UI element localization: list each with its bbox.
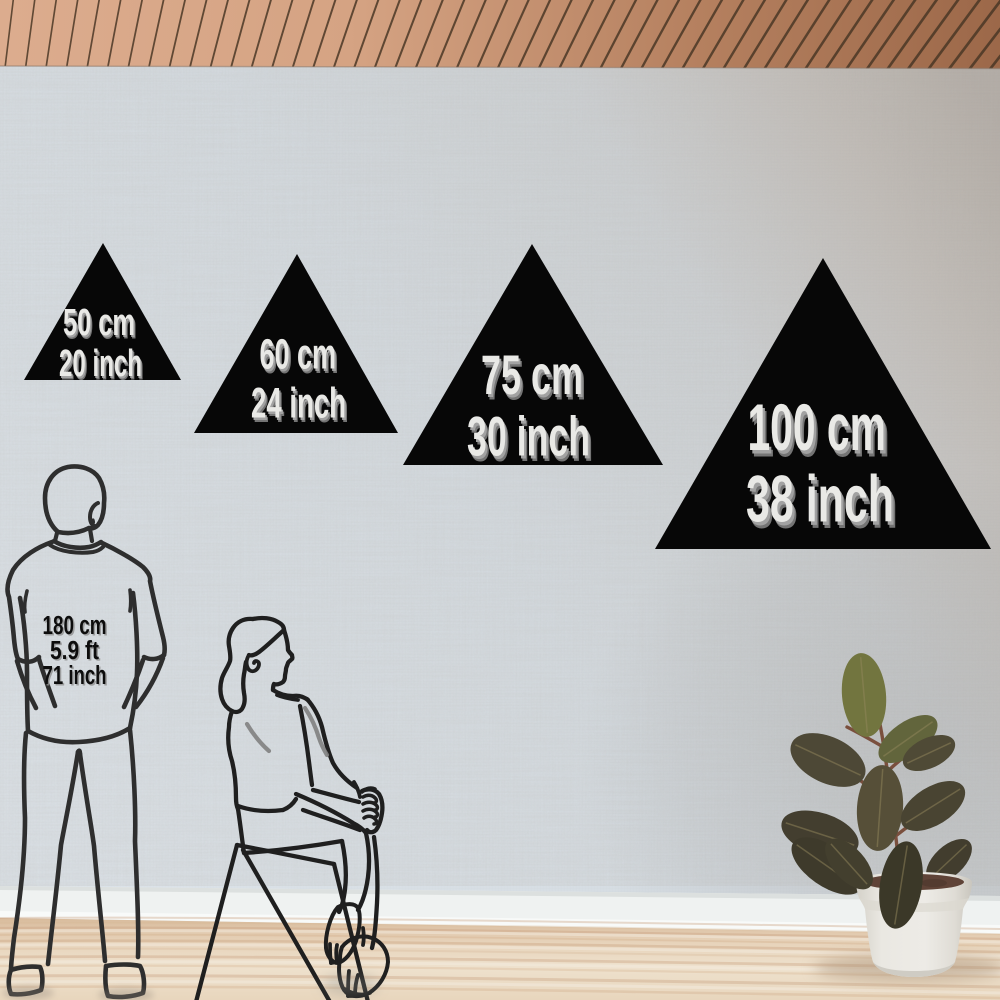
svg-text:24 inch: 24 inch — [251, 380, 346, 428]
svg-text:5.9 ft: 5.9 ft — [50, 637, 99, 665]
svg-text:50 cm: 50 cm — [63, 302, 135, 344]
svg-text:75 cm: 75 cm — [481, 343, 583, 406]
svg-text:180 cm: 180 cm — [43, 612, 107, 640]
svg-text:38 inch: 38 inch — [746, 462, 894, 536]
svg-text:71 inch: 71 inch — [43, 662, 107, 690]
svg-text:100 cm: 100 cm — [747, 390, 886, 464]
svg-text:20 inch: 20 inch — [59, 343, 142, 385]
svg-text:30 inch: 30 inch — [467, 405, 590, 468]
svg-text:60 cm: 60 cm — [259, 331, 336, 379]
